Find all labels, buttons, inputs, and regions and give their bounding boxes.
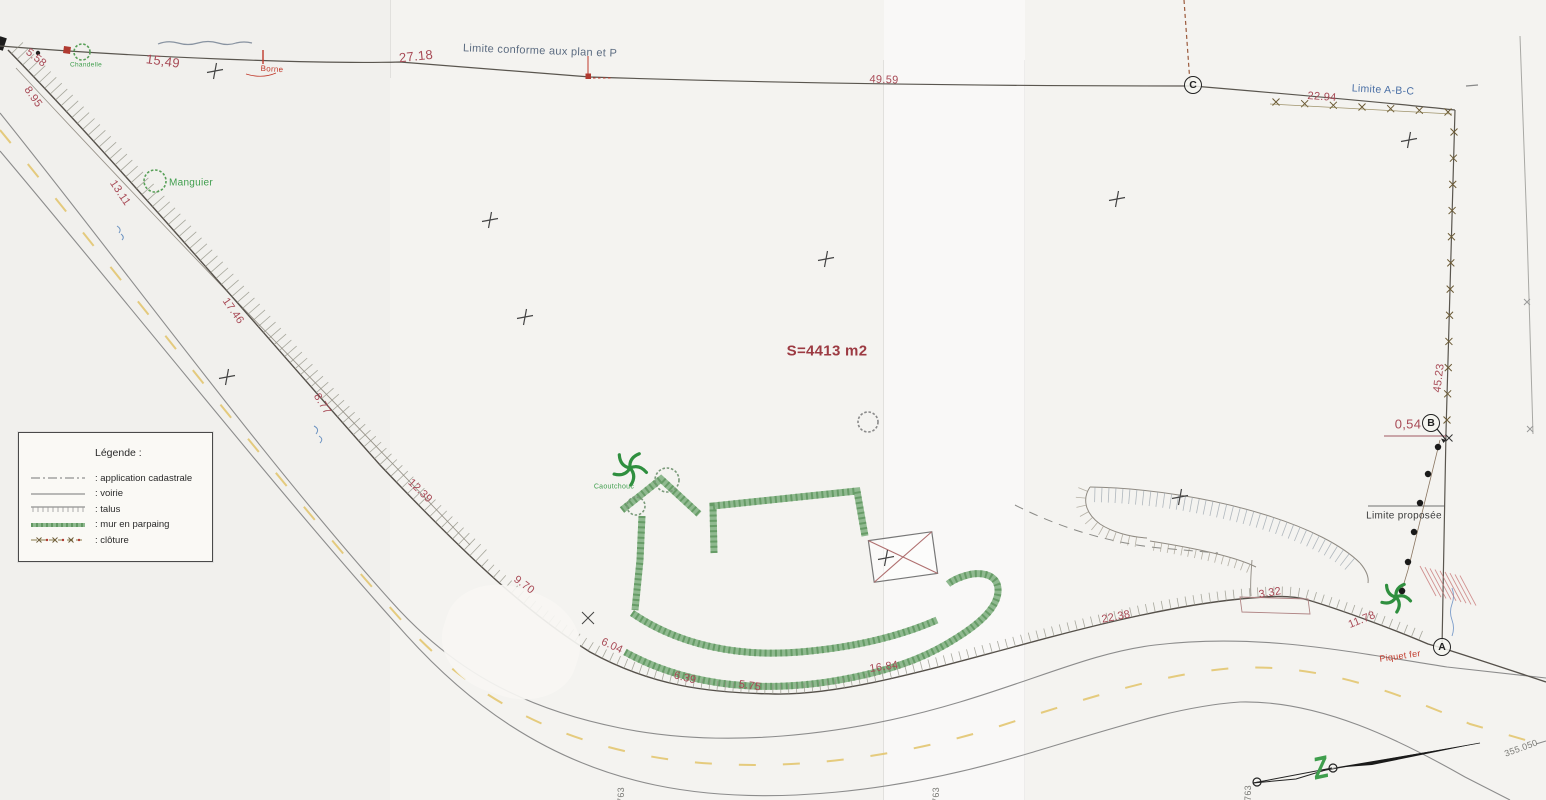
measure-22-94: 22.94	[1307, 90, 1337, 104]
boundary-point-b: B	[1422, 414, 1440, 432]
red-hatch-area	[1420, 566, 1476, 606]
legend-symbol-voirie	[29, 488, 87, 500]
legend-label-voirie: : voirie	[95, 488, 123, 499]
coord-763-a: 763	[616, 787, 626, 800]
legend-row-cloture: : clôture	[29, 533, 129, 547]
plan-linework	[0, 0, 1546, 800]
label-manguier: Manguier	[169, 178, 213, 189]
talus-curve-1	[1090, 487, 1360, 563]
label-caoutchouc: Caoutchouc	[594, 484, 634, 491]
boundary-bump	[1240, 597, 1310, 614]
far-right-line	[1520, 36, 1533, 434]
talus-curve-3	[1150, 541, 1256, 567]
bump-connector	[1251, 560, 1252, 596]
north-boundary-line	[0, 46, 1455, 110]
coord-763-c: 763	[1243, 785, 1253, 800]
short-dash-mark	[1466, 85, 1478, 86]
top-dashed-line	[1184, 0, 1190, 83]
borne-red-square	[63, 46, 71, 54]
parcel-boundary	[8, 50, 1546, 694]
legend-symbol-cloture	[29, 534, 87, 546]
point-b-arrow	[1437, 429, 1446, 440]
legend-label-cloture: : clôture	[95, 535, 129, 546]
legend-row-cadastrale: : application cadastrale	[29, 471, 192, 485]
talus-hatching	[11, 42, 1422, 694]
legend-row-talus: : talus	[29, 502, 120, 516]
measure-49-59: 49.59	[869, 73, 898, 86]
legend-label-cadastrale: : application cadastrale	[95, 473, 192, 484]
talus-hook	[1360, 563, 1368, 583]
road-edge-upper	[0, 113, 1546, 738]
legend-symbol-talus	[29, 503, 87, 515]
cadastral-dashed-arc	[1015, 505, 1218, 553]
label-borne: Borne	[260, 64, 283, 74]
parpaing-walls	[622, 479, 998, 686]
illegible-blue-note-2	[117, 226, 123, 240]
road-centerline	[0, 130, 1546, 765]
legend-box: Légende : : application cadastrale: voir…	[18, 432, 213, 562]
legend-row-voirie: : voirie	[29, 487, 123, 501]
measure-0-54: 0,54	[1395, 417, 1422, 432]
road-edge-lower	[0, 151, 1510, 800]
survey-plan: Légende : : application cadastrale: voir…	[0, 0, 1546, 800]
illegible-blue-note-1	[314, 426, 322, 443]
coord-763-b: 763	[931, 787, 941, 800]
legend-symbol-mur	[29, 519, 87, 531]
survey-point-red	[586, 74, 592, 80]
legend-row-mur: : mur en parpaing	[29, 518, 169, 532]
label-limite-proposee: Limite proposée	[1366, 511, 1442, 522]
north-arrow	[1253, 741, 1546, 786]
legend-symbol-cadastrale	[29, 472, 87, 484]
illegible-note-top	[158, 42, 252, 45]
label-chandelle: Chandelle	[70, 62, 102, 69]
legend-title: Légende :	[95, 447, 142, 459]
building-rect	[868, 532, 937, 582]
boundary-point-c: C	[1184, 76, 1202, 94]
fence-x-marks	[1270, 99, 1533, 442]
legend-label-mur: : mur en parpaing	[95, 519, 169, 530]
area-label: S=4413 m2	[787, 343, 868, 360]
boundary-point-a: A	[1433, 638, 1451, 656]
legend-label-talus: : talus	[95, 504, 120, 515]
